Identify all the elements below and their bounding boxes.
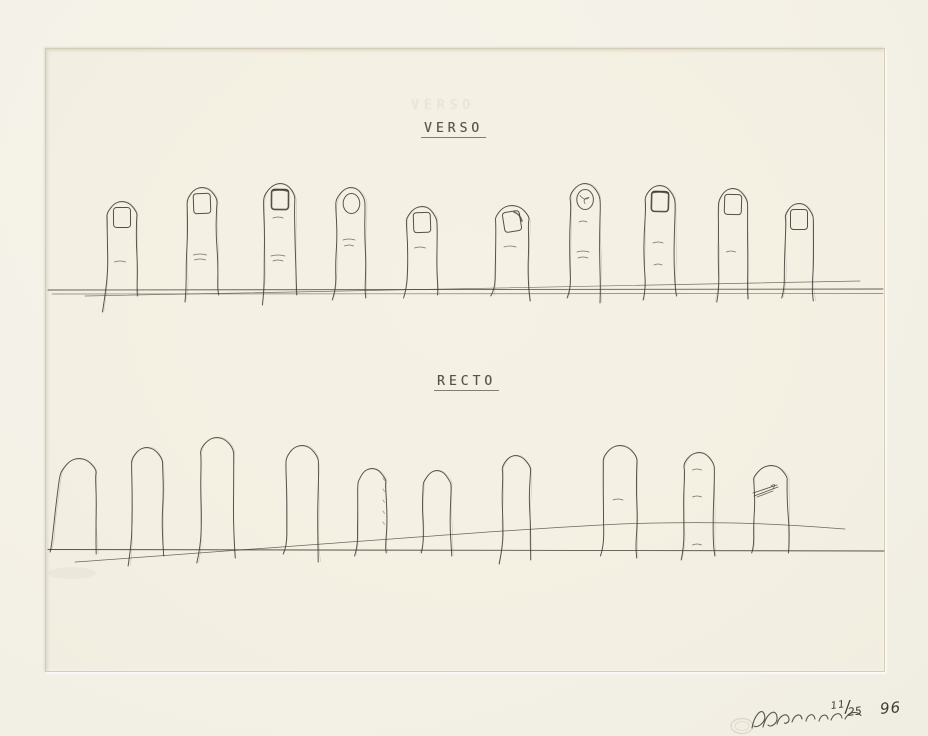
- blind-stamp: [731, 719, 753, 734]
- edition-denominator: 25: [847, 704, 862, 719]
- year-inscription: 96: [879, 698, 902, 718]
- edition-numerator: 11: [830, 699, 846, 712]
- plate-mark: [45, 48, 885, 672]
- verso-label: VERSO: [421, 121, 486, 138]
- edition-number: 11/25: [830, 695, 864, 718]
- verso-ghost-label: VERSO: [408, 98, 478, 114]
- recto-label: RECTO: [434, 374, 499, 391]
- artwork-paper: VERSO VERSO RECTO 11/25 96: [0, 0, 928, 736]
